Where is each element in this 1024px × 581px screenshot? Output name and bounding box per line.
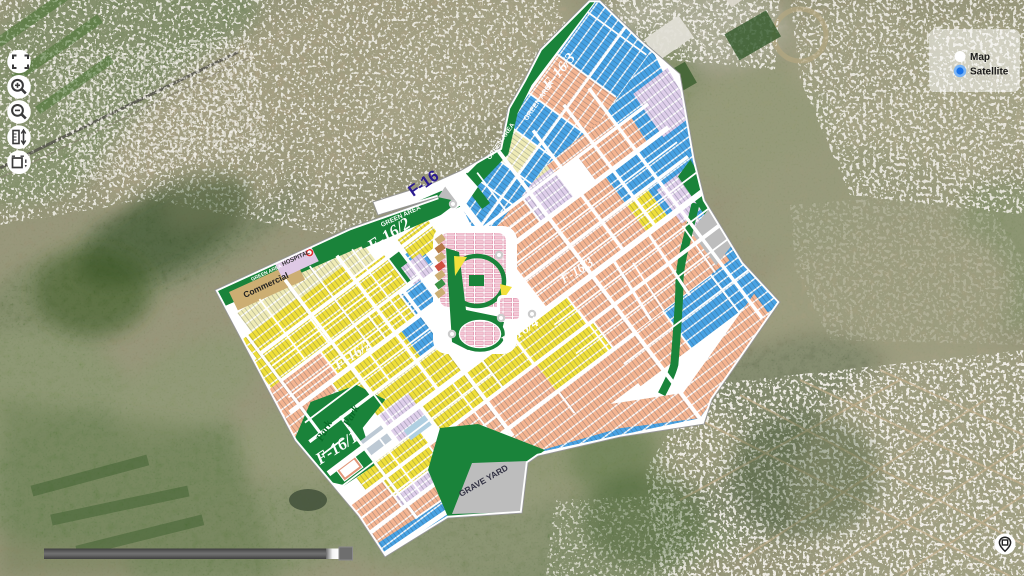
svg-text:Satellite: Satellite: [970, 67, 1009, 78]
svg-text:Map: Map: [970, 52, 990, 63]
